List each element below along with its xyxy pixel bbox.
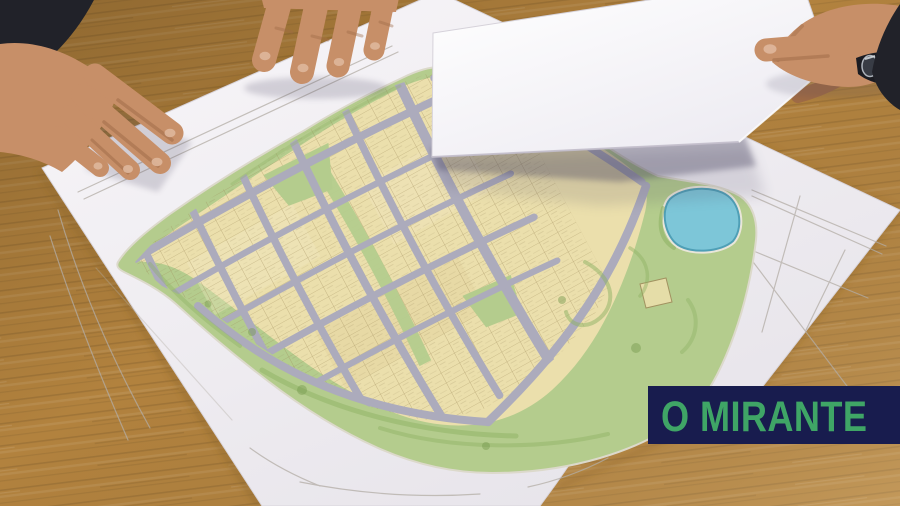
photo-canvas: O MIRANTE: [0, 0, 900, 506]
thumbnail: [764, 44, 777, 54]
thumb: [766, 44, 838, 50]
news-photo: O MIRANTE: [0, 0, 900, 506]
logo-watermark: O MIRANTE: [648, 386, 900, 444]
outlier-block: [640, 278, 672, 308]
top-hand-shadow: [244, 77, 388, 99]
logo-text: O MIRANTE: [661, 393, 867, 441]
